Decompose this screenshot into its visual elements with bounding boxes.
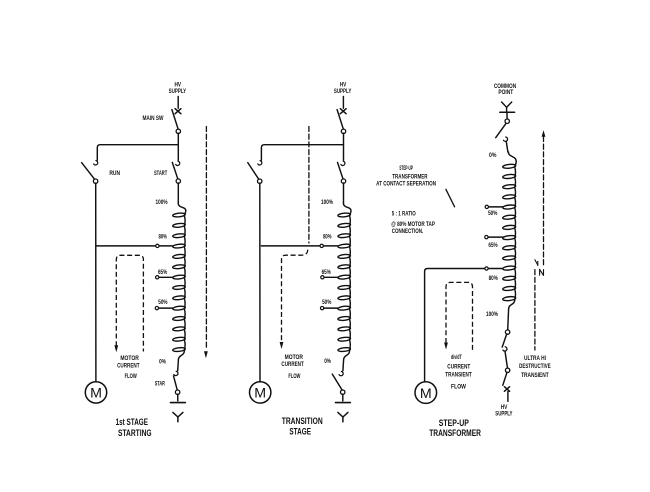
svg-text:65%: 65% <box>488 243 498 249</box>
svg-text:CURRENT: CURRENT <box>117 364 140 370</box>
svg-text:80%: 80% <box>323 235 332 241</box>
svg-text:65%: 65% <box>322 270 332 276</box>
svg-text:CURRENT: CURRENT <box>447 364 470 370</box>
svg-text:100%: 100% <box>486 312 499 318</box>
svg-text:0%: 0% <box>159 359 166 365</box>
svg-text:50%: 50% <box>322 300 332 306</box>
svg-text:FLOW: FLOW <box>125 374 137 380</box>
svg-text:TRANSIENT: TRANSIENT <box>445 372 472 378</box>
svg-text:0%: 0% <box>324 359 331 365</box>
svg-text:TRANSITION: TRANSITION <box>282 416 323 426</box>
svg-text:1st STAGE: 1st STAGE <box>116 417 148 427</box>
svg-text:0%: 0% <box>489 153 497 159</box>
svg-text:MAIN SW: MAIN SW <box>143 116 164 122</box>
svg-text:SUPPLY: SUPPLY <box>334 89 352 95</box>
svg-text:STAR: STAR <box>155 381 166 387</box>
svg-text:MOTOR: MOTOR <box>285 355 304 361</box>
svg-text:FLOW: FLOW <box>288 374 300 380</box>
svg-text:100%: 100% <box>156 200 169 206</box>
svg-text:M: M <box>254 386 266 402</box>
svg-text:50%: 50% <box>158 300 168 306</box>
svg-text:HV: HV <box>501 405 508 411</box>
svg-text:HV: HV <box>340 83 347 89</box>
svg-text:START: START <box>154 171 168 177</box>
svg-text:div/dT: div/dT <box>451 355 462 361</box>
svg-text:80%: 80% <box>489 276 499 282</box>
svg-text:HV: HV <box>175 83 182 89</box>
svg-text:M: M <box>420 386 432 402</box>
svg-text:STEP-UP: STEP-UP <box>439 418 469 428</box>
svg-text:100%: 100% <box>321 200 334 206</box>
svg-text:ULTRA HI: ULTRA HI <box>524 356 546 362</box>
svg-text:POINT: POINT <box>498 90 513 96</box>
svg-text:CURRENT: CURRENT <box>281 362 304 368</box>
svg-text:CONNECTION.: CONNECTION. <box>392 229 424 235</box>
svg-text:80%: 80% <box>159 235 168 241</box>
svg-text:SUPPLY: SUPPLY <box>495 412 512 418</box>
svg-text:TRANSIENT: TRANSIENT <box>521 373 549 379</box>
svg-text:STARTING: STARTING <box>118 428 152 438</box>
svg-text:MOTOR: MOTOR <box>120 356 139 362</box>
svg-text:RUN: RUN <box>109 171 120 177</box>
svg-text:SUPPLY: SUPPLY <box>169 89 187 95</box>
svg-text:@ 80% MOTOR TAP: @ 80% MOTOR TAP <box>391 222 435 228</box>
svg-text:FLOW: FLOW <box>451 384 466 390</box>
svg-text:STAGE: STAGE <box>289 427 311 437</box>
svg-text:5 : 1 RATIO: 5 : 1 RATIO <box>392 212 416 218</box>
svg-text:50%: 50% <box>488 211 498 217</box>
svg-text:65%: 65% <box>158 270 168 276</box>
svg-text:TRANSFORMER: TRANSFORMER <box>429 428 481 438</box>
svg-text:TRANSFORMER: TRANSFORMER <box>392 174 428 180</box>
svg-text:DESTRUCTIVE: DESTRUCTIVE <box>519 364 551 370</box>
svg-text:STEP-UP: STEP-UP <box>399 166 413 172</box>
svg-text:M: M <box>90 386 102 402</box>
svg-text:AT CONTACT SEPERATION: AT CONTACT SEPERATION <box>376 182 436 188</box>
